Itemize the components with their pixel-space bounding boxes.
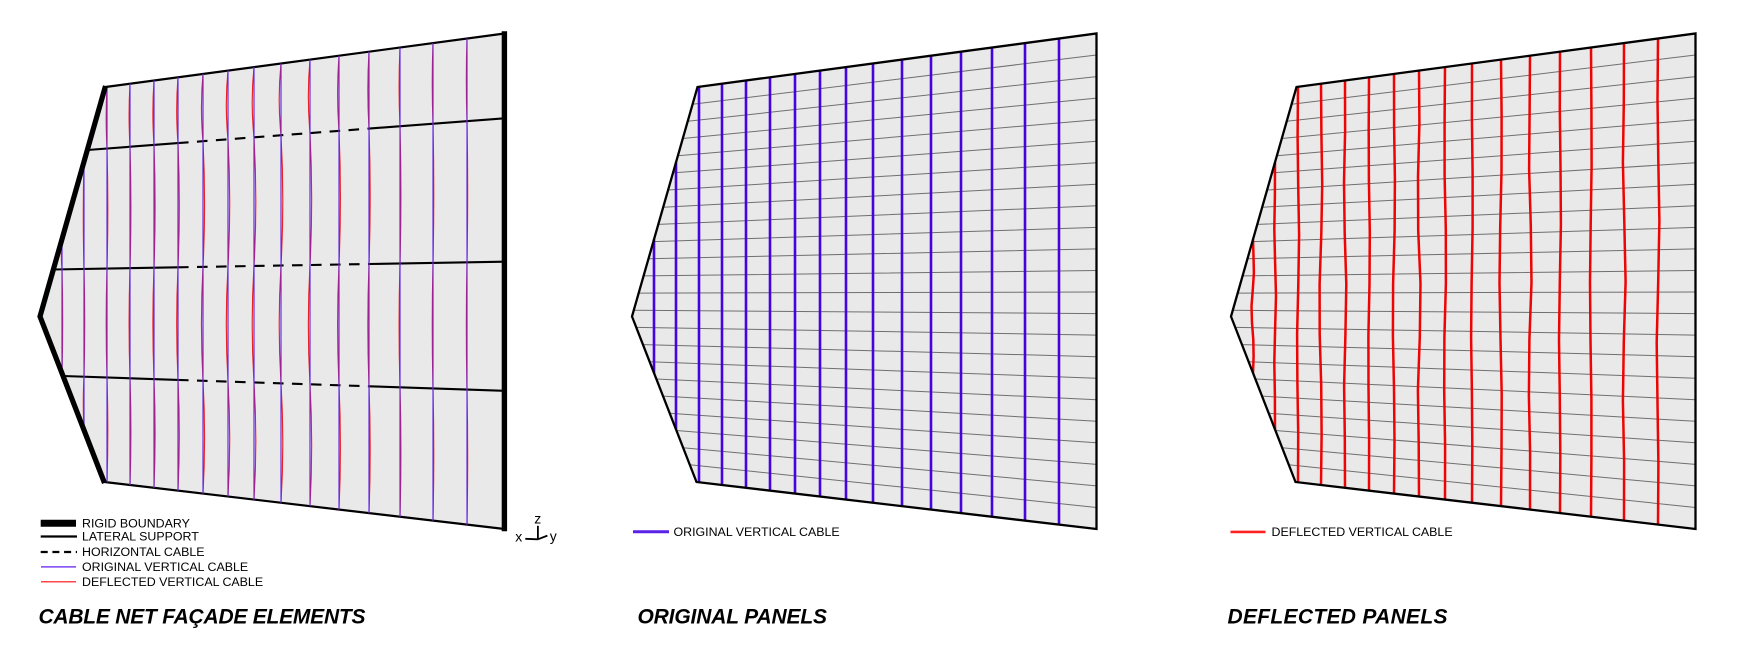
svg-text:LATERAL SUPPORT: LATERAL SUPPORT [82, 530, 199, 544]
svg-text:DEFLECTED VERTICAL CABLE: DEFLECTED VERTICAL CABLE [1272, 525, 1453, 539]
svg-text:y: y [550, 528, 557, 544]
svg-text:x: x [515, 529, 522, 545]
svg-text:ORIGINAL VERTICAL CABLE: ORIGINAL VERTICAL CABLE [82, 560, 248, 574]
svg-text:RIGID BOUNDARY: RIGID BOUNDARY [82, 516, 190, 530]
svg-text:DEFLECTED VERTICAL CABLE: DEFLECTED VERTICAL CABLE [82, 575, 263, 589]
svg-text:CABLE NET FAÇADE ELEMENTS: CABLE NET FAÇADE ELEMENTS [39, 606, 366, 629]
svg-text:ORIGINAL PANELS: ORIGINAL PANELS [638, 606, 828, 629]
svg-text:z: z [534, 510, 541, 526]
svg-text:DEFLECTED PANELS: DEFLECTED PANELS [1228, 606, 1448, 629]
svg-text:ORIGINAL VERTICAL CABLE: ORIGINAL VERTICAL CABLE [674, 525, 840, 539]
svg-text:HORIZONTAL CABLE: HORIZONTAL CABLE [82, 545, 205, 559]
